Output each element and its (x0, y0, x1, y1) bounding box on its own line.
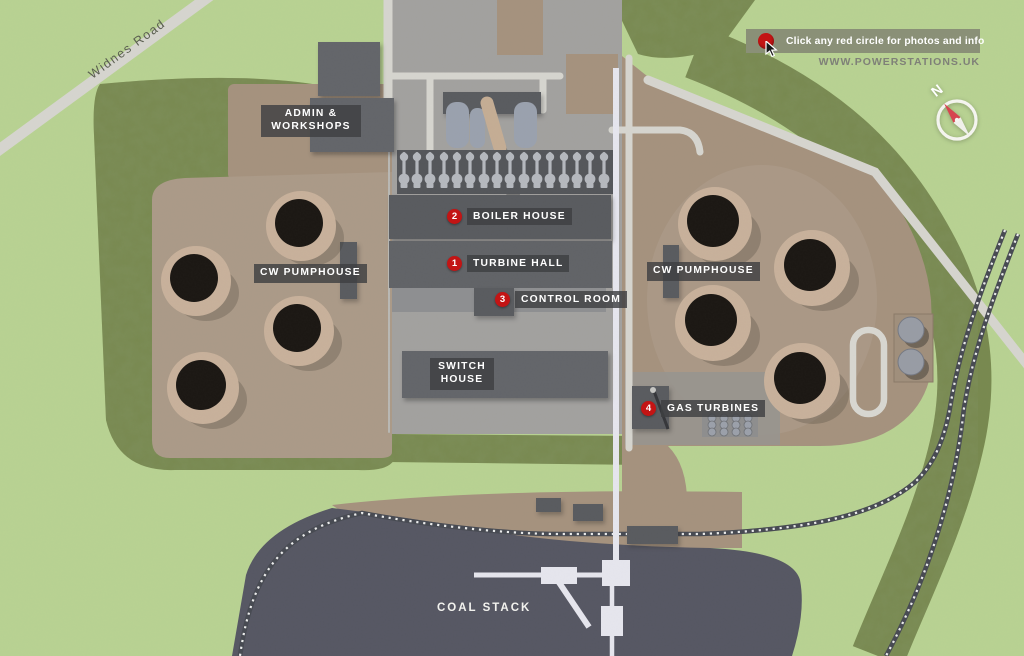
marker-3-circle[interactable]: 3 (495, 292, 510, 307)
info-banner: Click any red circle for photos and info (746, 29, 980, 53)
website-url-text: WWW.POWERSTATIONS.UK (740, 56, 980, 68)
admin-label-line1: ADMIN & (267, 108, 355, 121)
power-station-site-map: ADMIN & WORKSHOPS CW PUMPHOUSE CW PUMPHO… (0, 0, 1024, 656)
texture-overlay (0, 0, 1024, 656)
switch-house-label-line2: HOUSE (436, 374, 488, 387)
admin-label-line2: WORKSHOPS (267, 121, 355, 134)
marker-3-label: CONTROL ROOM (515, 291, 627, 308)
marker-gas-turbines: 4 GAS TURBINES (641, 400, 765, 417)
cw-pumphouse-right-label: CW PUMPHOUSE (647, 262, 760, 281)
coal-stack-label: COAL STACK (437, 602, 531, 614)
marker-control-room: 3 CONTROL ROOM (495, 291, 627, 308)
marker-4-circle[interactable]: 4 (641, 401, 656, 416)
map-graphics (0, 0, 1024, 656)
banner-instruction-text: Click any red circle for photos and info (786, 36, 985, 47)
switch-house-label-line1: SWITCH (436, 361, 488, 374)
marker-turbine-hall: 1 TURBINE HALL (447, 255, 569, 272)
marker-boiler-house: 2 BOILER HOUSE (447, 208, 572, 225)
admin-workshops-label: ADMIN & WORKSHOPS (261, 105, 361, 137)
compass-north-letter: N (928, 81, 946, 100)
switch-house-label: SWITCH HOUSE (430, 358, 494, 390)
marker-1-label: TURBINE HALL (467, 255, 569, 272)
marker-4-label: GAS TURBINES (661, 400, 765, 417)
marker-2-label: BOILER HOUSE (467, 208, 572, 225)
cw-pumphouse-left-label: CW PUMPHOUSE (254, 264, 367, 283)
marker-2-circle[interactable]: 2 (447, 209, 462, 224)
compass-icon: N (924, 78, 990, 154)
marker-1-circle[interactable]: 1 (447, 256, 462, 271)
